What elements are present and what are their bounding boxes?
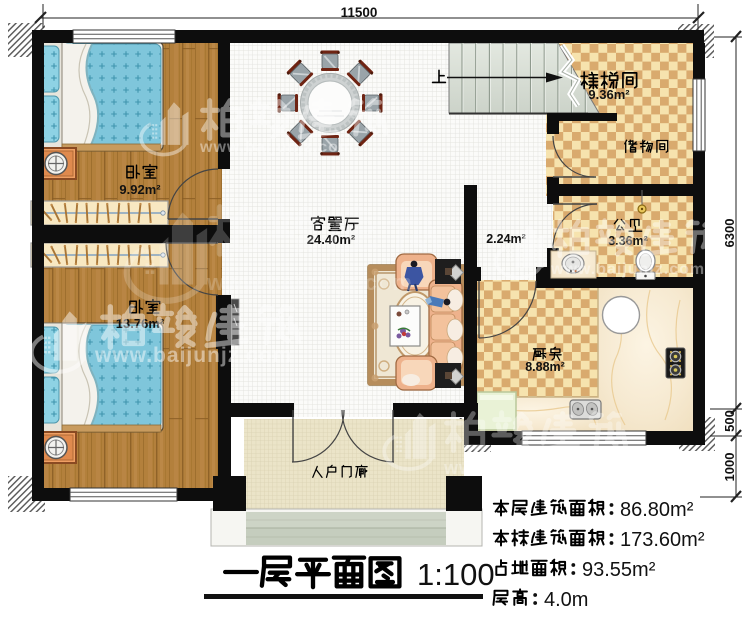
svg-text:www.baijunjz.com: www.baijunjz.com (206, 270, 413, 295)
svg-text:www.baijunjz.com: www.baijunjz.com (550, 261, 705, 278)
svg-text:www.baijunjz.com: www.baijunjz.com (443, 458, 615, 478)
svg-text:11500: 11500 (341, 5, 378, 20)
svg-text:500: 500 (722, 410, 737, 432)
svg-text:www.baijunjz.com: www.baijunjz.com (94, 344, 292, 367)
svg-text:173.60m²: 173.60m² (620, 529, 705, 551)
svg-text:8.88m²: 8.88m² (525, 360, 565, 374)
svg-text:93.55m²: 93.55m² (582, 559, 656, 581)
svg-text:4.0m: 4.0m (544, 589, 588, 611)
svg-text:9.36m²: 9.36m² (588, 87, 630, 102)
svg-text:1:100: 1:100 (417, 557, 495, 592)
svg-text:www.baijunjz.com: www.baijunjz.com (199, 139, 354, 156)
svg-text:6300: 6300 (722, 219, 737, 248)
svg-text:9.92m²: 9.92m² (119, 182, 161, 197)
svg-text:1000: 1000 (722, 453, 737, 482)
svg-text:86.80m²: 86.80m² (620, 499, 694, 521)
